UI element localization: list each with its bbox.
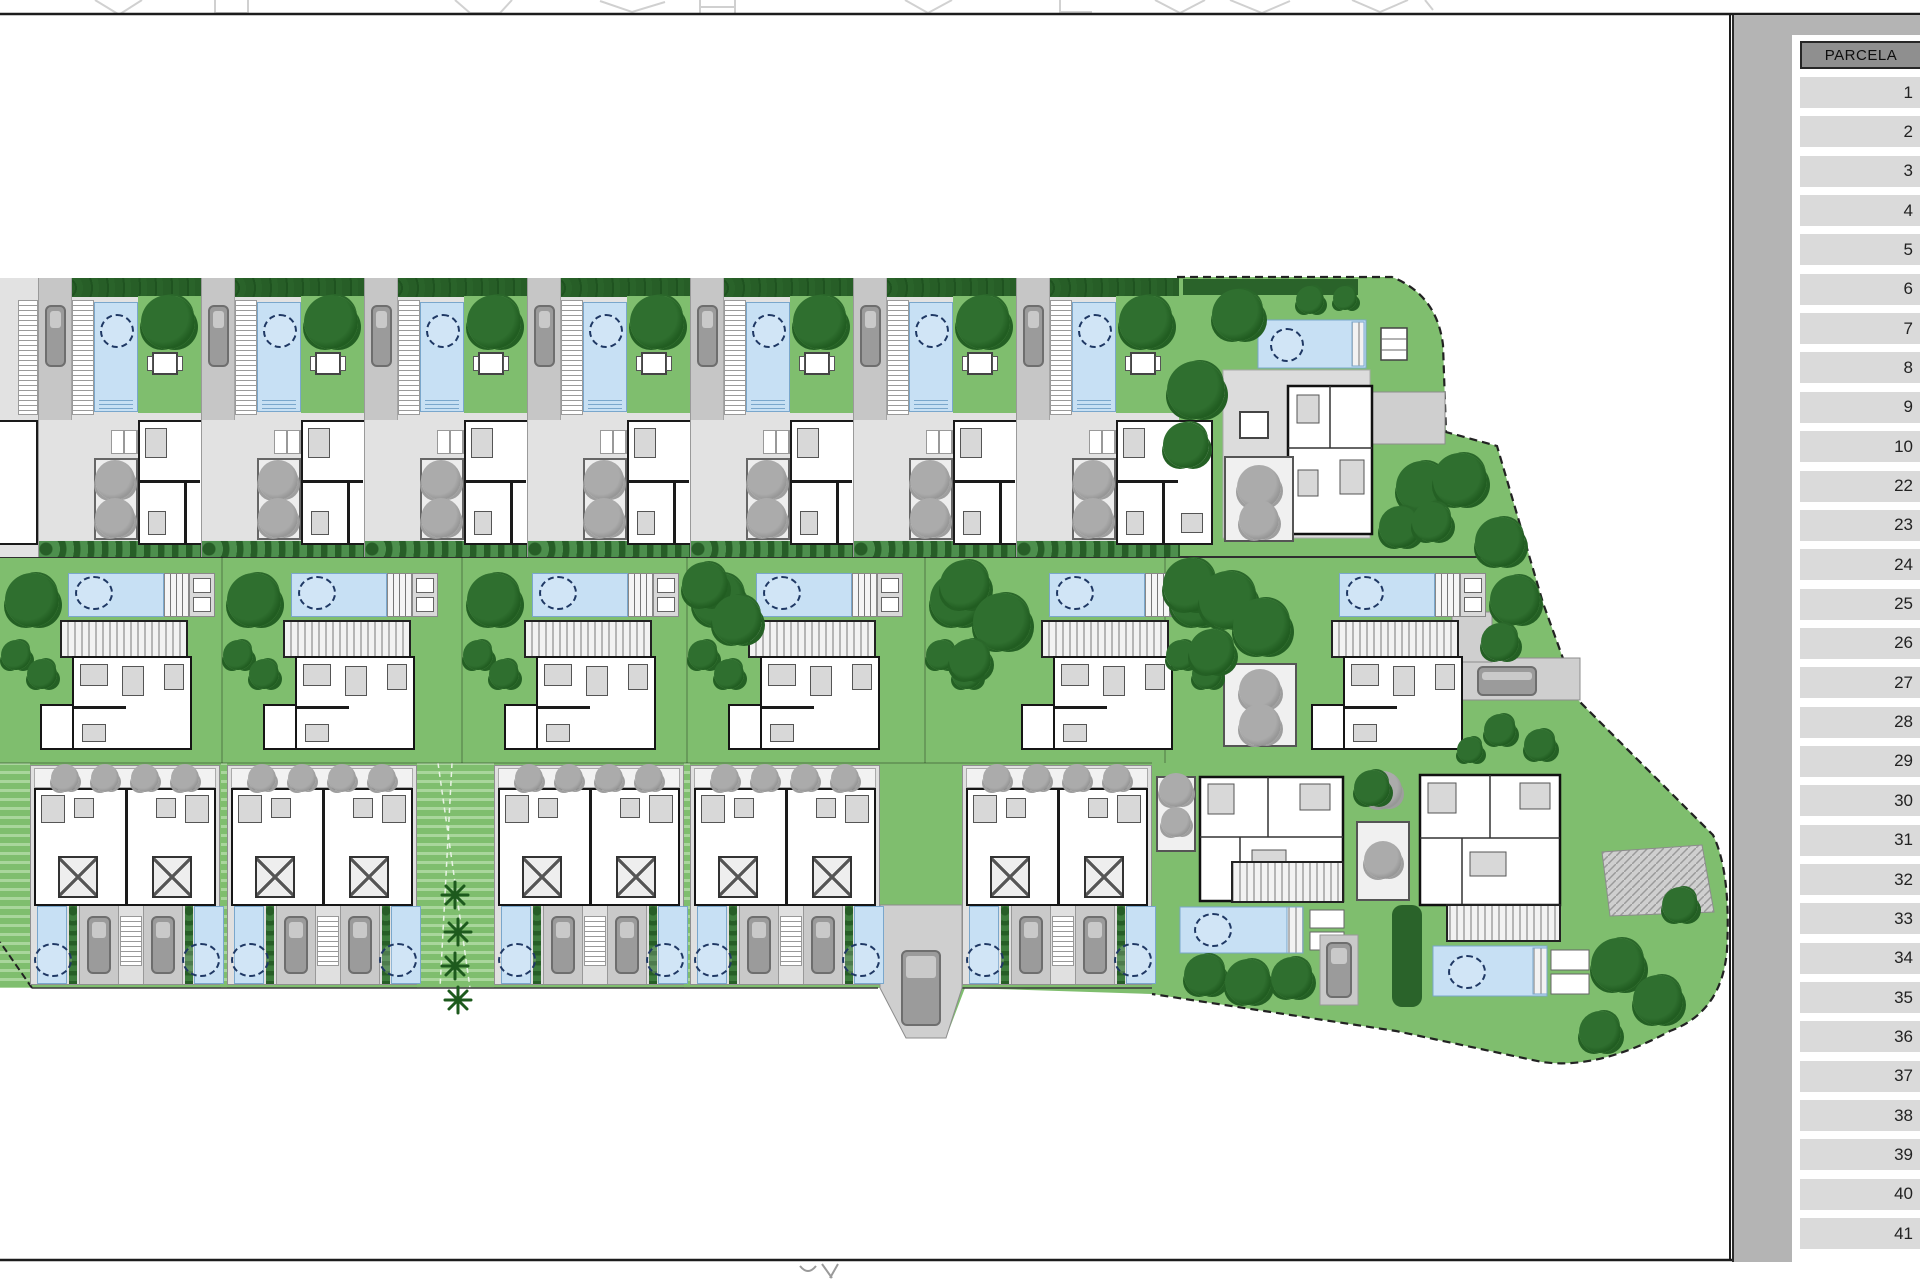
tree-icon xyxy=(1212,289,1264,341)
stairs-icon xyxy=(152,856,192,898)
tree-icon xyxy=(1591,938,1645,992)
stairs-icon xyxy=(58,856,98,898)
pool-steps-icon xyxy=(1435,573,1460,617)
car-icon xyxy=(87,916,111,974)
storage-room xyxy=(653,573,679,617)
tree-icon xyxy=(467,573,521,627)
palm-tree-icon xyxy=(440,880,470,910)
car-icon xyxy=(860,305,881,367)
parcel-table-row-8: 8 xyxy=(1800,352,1920,383)
stairs-icon xyxy=(780,916,802,966)
tree-icon xyxy=(949,639,991,681)
parcel-table-row-22: 22 xyxy=(1800,471,1920,502)
house-floorplan-pair xyxy=(966,788,1148,906)
stairs-icon xyxy=(718,856,758,898)
car-icon xyxy=(1326,942,1352,998)
parcel-marker-4 xyxy=(752,314,786,348)
tree-icon xyxy=(1167,361,1225,419)
gray-tree-icon xyxy=(95,460,135,500)
stairs-icon xyxy=(317,916,339,966)
watermark-outline-letters xyxy=(95,0,1433,14)
sun-loungers-icon xyxy=(1089,430,1119,454)
parcel-table-row-36: 36 xyxy=(1800,1021,1920,1052)
tree-icon xyxy=(712,595,762,645)
parcel-table-row-32: 32 xyxy=(1800,864,1920,895)
parcel-marker-5 xyxy=(589,314,623,348)
pergola-deck xyxy=(748,620,876,658)
gray-tree-icon xyxy=(747,498,787,538)
house-extension xyxy=(504,704,536,750)
gray-tree-icon xyxy=(515,764,543,792)
gray-tree-icon xyxy=(1103,764,1131,792)
pergola-deck xyxy=(283,620,411,658)
outdoor-table-icon xyxy=(152,352,178,375)
parcel-table-row-7: 7 xyxy=(1800,313,1920,344)
tree-icon xyxy=(793,295,847,349)
car-icon xyxy=(747,916,771,974)
stairs-icon xyxy=(235,300,257,415)
parcel-marker-40 xyxy=(1448,955,1486,989)
tree-icon xyxy=(1579,1011,1621,1053)
pool-steps-icon xyxy=(852,573,877,617)
parcel-marker-39 xyxy=(1194,913,1232,947)
house-floorplan-partial xyxy=(0,420,38,545)
gray-tree-icon xyxy=(555,764,583,792)
parcel-table: PARCELA 12345678910222324252627282930313… xyxy=(1792,35,1920,1276)
parcel-table-row-37: 37 xyxy=(1800,1061,1920,1092)
tree-icon xyxy=(5,573,59,627)
car-icon xyxy=(348,916,372,974)
parcel-table-row-34: 34 xyxy=(1800,943,1920,974)
car-icon xyxy=(901,950,941,1026)
parcel-marker-7 xyxy=(263,314,297,348)
house-extension xyxy=(728,704,760,750)
hedge-icon xyxy=(385,278,527,297)
hedge-icon xyxy=(266,906,274,984)
parcel-table-row-35: 35 xyxy=(1800,982,1920,1013)
gray-tree-icon xyxy=(711,764,739,792)
house-floorplan-pair xyxy=(694,788,876,906)
parcel-marker-26 xyxy=(182,943,220,977)
storage-room xyxy=(877,573,903,617)
hedge-icon xyxy=(1001,906,1009,984)
gray-tree-icon xyxy=(983,764,1011,792)
house-floorplan-pair xyxy=(498,788,680,906)
parcel-marker-1 xyxy=(1270,328,1304,362)
car-icon xyxy=(151,916,175,974)
tree-icon xyxy=(1271,957,1313,999)
gray-tree-icon xyxy=(328,764,356,792)
gray-tree-icon xyxy=(91,764,119,792)
pool-steps-icon xyxy=(628,573,653,617)
car-icon xyxy=(371,305,392,367)
hedge-icon xyxy=(874,278,1016,297)
gray-tree-icon xyxy=(910,460,950,500)
tree-icon xyxy=(1457,737,1483,763)
gray-tree-icon xyxy=(51,764,79,792)
tree-icon xyxy=(227,573,281,627)
tree-icon xyxy=(1524,729,1556,761)
storage-room xyxy=(189,573,215,617)
parcel-table-row-39: 39 xyxy=(1800,1139,1920,1170)
gray-tree-icon xyxy=(747,460,787,500)
sun-loungers-icon xyxy=(926,430,956,454)
gray-tree-icon xyxy=(95,498,135,538)
house-floorplan xyxy=(72,656,192,750)
gray-tree-icon xyxy=(910,498,950,538)
house-extension xyxy=(263,704,295,750)
parcel-table-row-27: 27 xyxy=(1800,667,1920,698)
bottom-logo-fragment xyxy=(800,1264,838,1278)
tree-icon xyxy=(463,640,493,670)
parcel-table-row-38: 38 xyxy=(1800,1100,1920,1131)
tree-icon xyxy=(1225,959,1271,1005)
palm-tree-icon xyxy=(443,917,473,947)
tree-icon xyxy=(688,640,718,670)
parcel-marker-2 xyxy=(1078,314,1112,348)
outdoor-table-icon xyxy=(641,352,667,375)
parcel-table-row-6: 6 xyxy=(1800,274,1920,305)
parcel-table-row-31: 31 xyxy=(1800,825,1920,856)
stairs-icon xyxy=(990,856,1030,898)
parcel-table-header: PARCELA xyxy=(1800,41,1920,69)
hedge-icon xyxy=(711,278,853,297)
tree-icon xyxy=(1233,598,1291,656)
gray-tree-icon xyxy=(421,460,461,500)
gray-tree-icon xyxy=(288,764,316,792)
parcel-table-row-5: 5 xyxy=(1800,234,1920,265)
car-icon xyxy=(1083,916,1107,974)
parcel-marker-37 xyxy=(1056,576,1094,610)
gray-tree-icon xyxy=(258,460,298,500)
parcel-marker-6 xyxy=(426,314,460,348)
hedge-icon xyxy=(729,906,737,984)
stairs-icon xyxy=(812,856,852,898)
parcel-table-row-9: 9 xyxy=(1800,392,1920,423)
tree-icon xyxy=(1354,770,1390,806)
gray-tree-icon xyxy=(131,764,159,792)
tree-icon xyxy=(489,659,519,689)
parcel-table-row-4: 4 xyxy=(1800,195,1920,226)
parcel-marker-28 xyxy=(231,943,269,977)
car-icon xyxy=(1023,305,1044,367)
tree-icon xyxy=(1412,502,1452,542)
site-plan-page: PARCELA 12345678910222324252627282930313… xyxy=(0,0,1920,1280)
gray-tree-icon xyxy=(248,764,276,792)
stairs-icon xyxy=(1050,300,1072,415)
tree-icon xyxy=(1433,453,1487,507)
gray-tree-icon xyxy=(1161,807,1191,837)
gray-tree-icon xyxy=(831,764,859,792)
parcel-legend-panel: PARCELA 12345678910222324252627282930313… xyxy=(1732,15,1920,1262)
house-floorplan xyxy=(760,656,880,750)
stairs-icon xyxy=(18,300,38,415)
car-icon xyxy=(534,305,555,367)
tree-icon xyxy=(249,659,279,689)
parcel-marker-33 xyxy=(763,576,801,610)
gray-tree-icon xyxy=(584,460,624,500)
stairs-icon xyxy=(398,300,420,415)
parcel-table-row-1: 1 xyxy=(1800,77,1920,108)
stairs-icon xyxy=(724,300,746,415)
house-floorplan xyxy=(1053,656,1173,750)
tree-icon xyxy=(141,295,195,349)
stairs-icon xyxy=(120,916,142,966)
parcel-marker-34 xyxy=(694,943,732,977)
tree-icon xyxy=(1189,629,1235,675)
parcel-table-row-10: 10 xyxy=(1800,431,1920,462)
house-floorplan-pair xyxy=(34,788,216,906)
tree-icon xyxy=(630,295,684,349)
stairs-icon xyxy=(584,916,606,966)
sun-loungers-icon xyxy=(274,430,304,454)
parcel-marker-29 xyxy=(379,943,417,977)
gray-tree-icon xyxy=(1239,704,1281,746)
parcel-table-row-29: 29 xyxy=(1800,746,1920,777)
tree-icon xyxy=(1484,714,1516,746)
house-floorplan xyxy=(536,656,656,750)
house-floorplan-pair xyxy=(231,788,413,906)
gray-tree-icon xyxy=(368,764,396,792)
tree-icon xyxy=(714,659,744,689)
tree-icon xyxy=(467,295,521,349)
tree-icon xyxy=(1633,975,1683,1025)
tree-icon xyxy=(1481,623,1519,661)
parcel-marker-36 xyxy=(966,943,1004,977)
stairs-icon xyxy=(522,856,562,898)
stairs-icon xyxy=(349,856,389,898)
gray-tree-icon xyxy=(421,498,461,538)
sun-loungers-icon xyxy=(437,430,467,454)
storage-room xyxy=(412,573,438,617)
hedge-icon xyxy=(222,278,364,297)
outdoor-table-icon xyxy=(315,352,341,375)
car-icon xyxy=(551,916,575,974)
tree-icon xyxy=(1163,422,1209,468)
tree-icon xyxy=(27,659,57,689)
hedge-icon xyxy=(1037,278,1179,297)
stairs-icon xyxy=(561,300,583,415)
gray-tree-icon xyxy=(1073,498,1113,538)
pergola-deck xyxy=(1331,620,1459,658)
car-icon xyxy=(697,305,718,367)
storage-room xyxy=(1460,573,1486,617)
car-icon xyxy=(1477,666,1537,696)
parcel-table-row-26: 26 xyxy=(1800,628,1920,659)
house-extension xyxy=(40,704,72,750)
stairs-icon xyxy=(255,856,295,898)
house-floorplan xyxy=(295,656,415,750)
tree-icon xyxy=(1296,286,1324,314)
parcel-marker-3 xyxy=(915,314,949,348)
tree-icon xyxy=(1184,954,1226,996)
parcel-table-row-2: 2 xyxy=(1800,116,1920,147)
gray-tree-icon xyxy=(751,764,779,792)
gray-tree-icon xyxy=(1073,460,1113,500)
car-icon xyxy=(811,916,835,974)
gray-tree-icon xyxy=(791,764,819,792)
parcel-table-row-3: 3 xyxy=(1800,156,1920,187)
tree-icon xyxy=(1119,295,1173,349)
pool-steps-icon xyxy=(164,573,189,617)
parcel-marker-27 xyxy=(298,576,336,610)
house-extension xyxy=(1311,704,1343,750)
gray-tree-icon xyxy=(1159,773,1193,807)
parcel-table-row-41: 41 xyxy=(1800,1218,1920,1249)
parcel-marker-30 xyxy=(498,943,536,977)
stairs-icon xyxy=(1084,856,1124,898)
house-extension xyxy=(1021,704,1053,750)
parcel-marker-41 xyxy=(1346,576,1384,610)
gray-tree-icon xyxy=(171,764,199,792)
tree-icon xyxy=(1475,517,1525,567)
tree-icon xyxy=(1662,887,1698,923)
outdoor-table-icon xyxy=(1130,352,1156,375)
gray-tree-icon xyxy=(1063,764,1091,792)
parcel-table-row-33: 33 xyxy=(1800,903,1920,934)
sun-loungers-icon xyxy=(763,430,793,454)
outdoor-table-icon xyxy=(804,352,830,375)
outdoor-table-icon xyxy=(967,352,993,375)
gray-tree-icon xyxy=(1023,764,1051,792)
sun-loungers-icon xyxy=(111,430,141,454)
parcel-marker-38 xyxy=(1114,943,1152,977)
palm-tree-icon xyxy=(440,951,470,981)
sun-loungers-icon xyxy=(600,430,630,454)
outdoor-table-icon xyxy=(478,352,504,375)
gray-tree-icon xyxy=(1364,841,1402,879)
car-icon xyxy=(208,305,229,367)
pergola-deck xyxy=(60,620,188,658)
palm-tree-icon xyxy=(443,985,473,1015)
hedge-icon xyxy=(69,906,77,984)
car-icon xyxy=(615,916,639,974)
tree-icon xyxy=(1490,575,1540,625)
stairs-icon xyxy=(887,300,909,415)
hedge-icon xyxy=(548,278,690,297)
tree-icon xyxy=(1,640,31,670)
car-icon xyxy=(284,916,308,974)
parcel-table-row-30: 30 xyxy=(1800,785,1920,816)
gray-tree-icon xyxy=(1239,500,1279,540)
car-icon xyxy=(1019,916,1043,974)
pergola-deck xyxy=(1041,620,1169,658)
car-icon xyxy=(45,305,66,367)
parcel-marker-31 xyxy=(539,576,577,610)
tree-icon xyxy=(223,640,253,670)
gray-tree-icon xyxy=(258,498,298,538)
parcel-marker-35 xyxy=(842,943,880,977)
hedge-icon xyxy=(59,278,201,297)
parcel-table-row-40: 40 xyxy=(1800,1179,1920,1210)
stairs-icon xyxy=(72,300,94,415)
parcel-table-row-23: 23 xyxy=(1800,510,1920,541)
parcel-marker-25 xyxy=(75,576,113,610)
house-floorplan xyxy=(1343,656,1463,750)
pool-steps-icon xyxy=(387,573,412,617)
gray-tree-icon xyxy=(584,498,624,538)
tree-icon xyxy=(304,295,358,349)
parcel-table-row-28: 28 xyxy=(1800,707,1920,738)
parcel-marker-32 xyxy=(646,943,684,977)
pergola-deck xyxy=(524,620,652,658)
parcel-marker-8 xyxy=(100,314,134,348)
hedge-icon xyxy=(533,906,541,984)
parcel-marker-24 xyxy=(34,943,72,977)
gray-tree-icon xyxy=(595,764,623,792)
parcel-table-row-24: 24 xyxy=(1800,549,1920,580)
tree-icon xyxy=(956,295,1010,349)
tree-icon xyxy=(1333,286,1357,310)
parcel-table-row-25: 25 xyxy=(1800,589,1920,620)
gray-tree-icon xyxy=(635,764,663,792)
stairs-icon xyxy=(616,856,656,898)
stairs-icon xyxy=(1052,916,1074,966)
